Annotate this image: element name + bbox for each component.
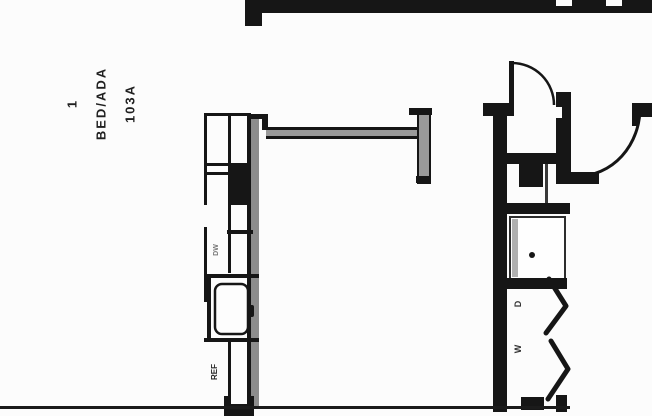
closet-right-wall	[556, 92, 571, 184]
break-line-chevron-2	[548, 341, 568, 399]
cabinet-divider-1b	[204, 172, 230, 175]
top-wall	[247, 0, 652, 13]
closet-lower-bar	[507, 278, 567, 289]
unit-label-line-2: BED/ADA	[87, 59, 116, 149]
cabinet-divider-2	[227, 230, 253, 234]
refrigerator-label: REF	[209, 357, 219, 387]
closet-right-wall-base-bar	[556, 172, 599, 184]
top-wall-left-return	[245, 0, 262, 26]
unit-label-line-1: 1	[58, 59, 87, 149]
sink-bowl	[215, 284, 248, 334]
half-wall-bottom-edge	[266, 136, 420, 139]
sink-counter-top-edge	[204, 274, 259, 278]
cabinet-line-mid	[228, 205, 231, 273]
cabinet-line-mid-upper	[228, 113, 231, 165]
sink-counter-bottom-edge	[204, 338, 259, 342]
closet-mid-bar	[507, 203, 570, 214]
kitchen-wall-gray-strip	[251, 118, 259, 407]
unit-number: 103A	[116, 59, 145, 149]
closet-right-wall-notch	[555, 107, 562, 118]
door-swing-arc-2	[578, 108, 640, 176]
washer-center-dot-icon	[529, 252, 535, 258]
half-wall-end-post-bottom-cap	[416, 176, 431, 183]
closet-divider-line	[545, 164, 548, 204]
cabinet-top-edge	[204, 113, 251, 116]
closet-jamb-block	[519, 163, 543, 187]
top-wall-opening-notch-1	[556, 0, 572, 6]
door-leaf-1	[509, 61, 514, 107]
washer-unit-shading	[512, 219, 518, 277]
bottom-wall-line	[0, 406, 570, 409]
floor-plan: 1 BED/ADA 103A DW REF D	[0, 0, 652, 416]
closet-left-wall	[493, 103, 507, 412]
door-swing-arc-1	[512, 63, 554, 105]
faucet-icon	[245, 305, 254, 317]
washer-label: W	[512, 341, 524, 357]
cabinet-line-right	[247, 113, 251, 400]
range-block	[228, 165, 251, 205]
dishwasher-label: DW	[211, 235, 221, 265]
closet-bottom-stub	[556, 395, 567, 412]
half-wall-end-post	[417, 108, 431, 184]
dryer-label: D	[512, 296, 524, 312]
door-2-stop-tick	[632, 115, 639, 126]
sink-cabinet-left-edge	[207, 278, 211, 338]
half-wall-end-post-top-cap	[409, 108, 432, 115]
top-wall-opening-notch-2	[606, 0, 622, 6]
cabinet-line-mid-lower	[228, 342, 231, 398]
unit-label: 1 BED/ADA 103A	[58, 59, 145, 149]
cabinet-line-left-upper	[204, 113, 207, 205]
